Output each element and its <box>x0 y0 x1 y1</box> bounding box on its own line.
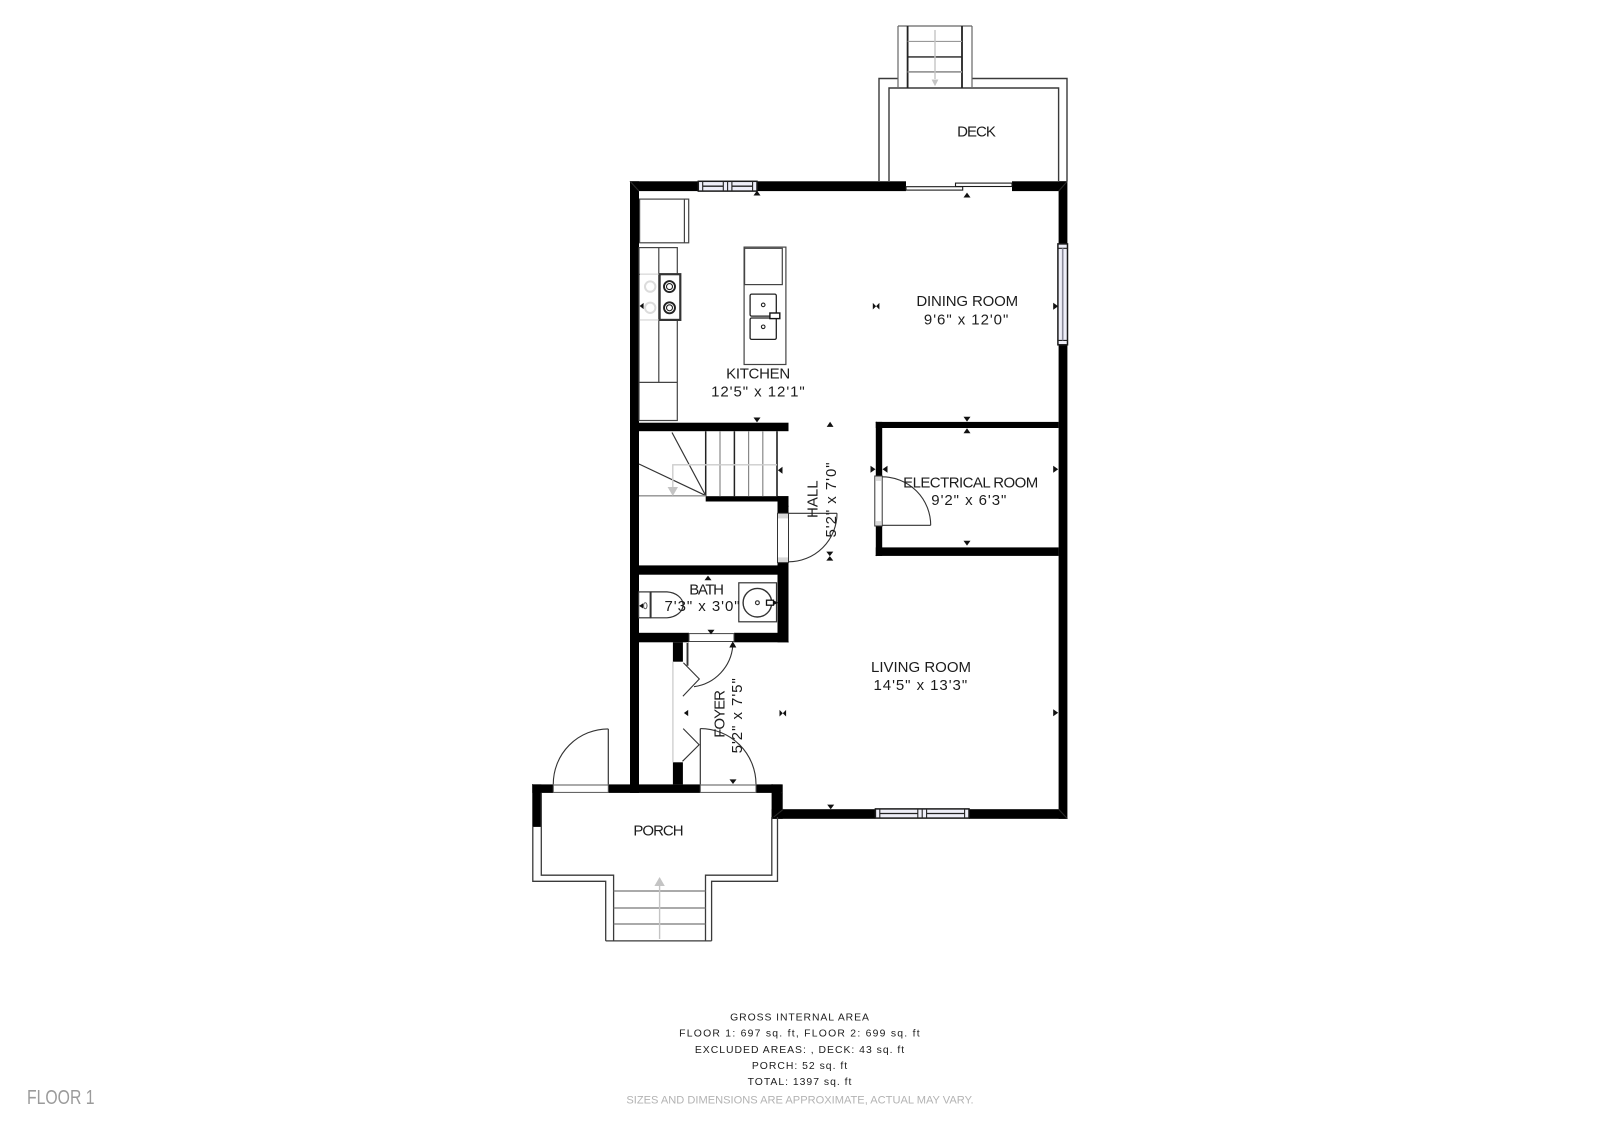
svg-text:9'6" x 12'0": 9'6" x 12'0" <box>924 311 1009 328</box>
svg-text:PORCH: PORCH <box>633 823 682 840</box>
svg-text:TOTAL: 1397 sq. ft: TOTAL: 1397 sq. ft <box>748 1077 853 1088</box>
svg-text:FLOOR 1: FLOOR 1 <box>27 1085 95 1109</box>
svg-text:GROSS INTERNAL AREA: GROSS INTERNAL AREA <box>730 1013 870 1024</box>
svg-text:LIVING ROOM: LIVING ROOM <box>871 659 971 676</box>
svg-text:5'2" x 7'0": 5'2" x 7'0" <box>823 461 840 537</box>
svg-text:DINING ROOM: DINING ROOM <box>916 293 1018 310</box>
svg-text:7'3" x 3'0": 7'3" x 3'0" <box>664 598 740 615</box>
svg-text:PORCH: 52 sq. ft: PORCH: 52 sq. ft <box>752 1061 848 1072</box>
svg-text:12'5" x 12'1": 12'5" x 12'1" <box>711 383 806 400</box>
svg-text:BATH: BATH <box>689 582 723 599</box>
svg-text:HALL: HALL <box>805 480 822 518</box>
svg-text:5'2" x 7'5": 5'2" x 7'5" <box>729 677 746 753</box>
svg-text:14'5" x 13'3": 14'5" x 13'3" <box>873 677 968 694</box>
svg-text:9'2" x 6'3": 9'2" x 6'3" <box>931 492 1007 509</box>
svg-text:EXCLUDED AREAS: , DECK: 43 sq.: EXCLUDED AREAS: , DECK: 43 sq. ft <box>695 1045 905 1056</box>
svg-text:FOYER: FOYER <box>711 690 728 738</box>
svg-text:FLOOR 1: 697 sq. ft, FLOOR 2:: FLOOR 1: 697 sq. ft, FLOOR 2: 699 sq. ft <box>679 1029 921 1040</box>
svg-text:DECK: DECK <box>957 124 996 141</box>
svg-text:KITCHEN: KITCHEN <box>726 365 790 382</box>
svg-text:ELECTRICAL ROOM: ELECTRICAL ROOM <box>903 474 1038 491</box>
svg-text:SIZES AND DIMENSIONS ARE APPRO: SIZES AND DIMENSIONS ARE APPROXIMATE, AC… <box>626 1094 973 1106</box>
